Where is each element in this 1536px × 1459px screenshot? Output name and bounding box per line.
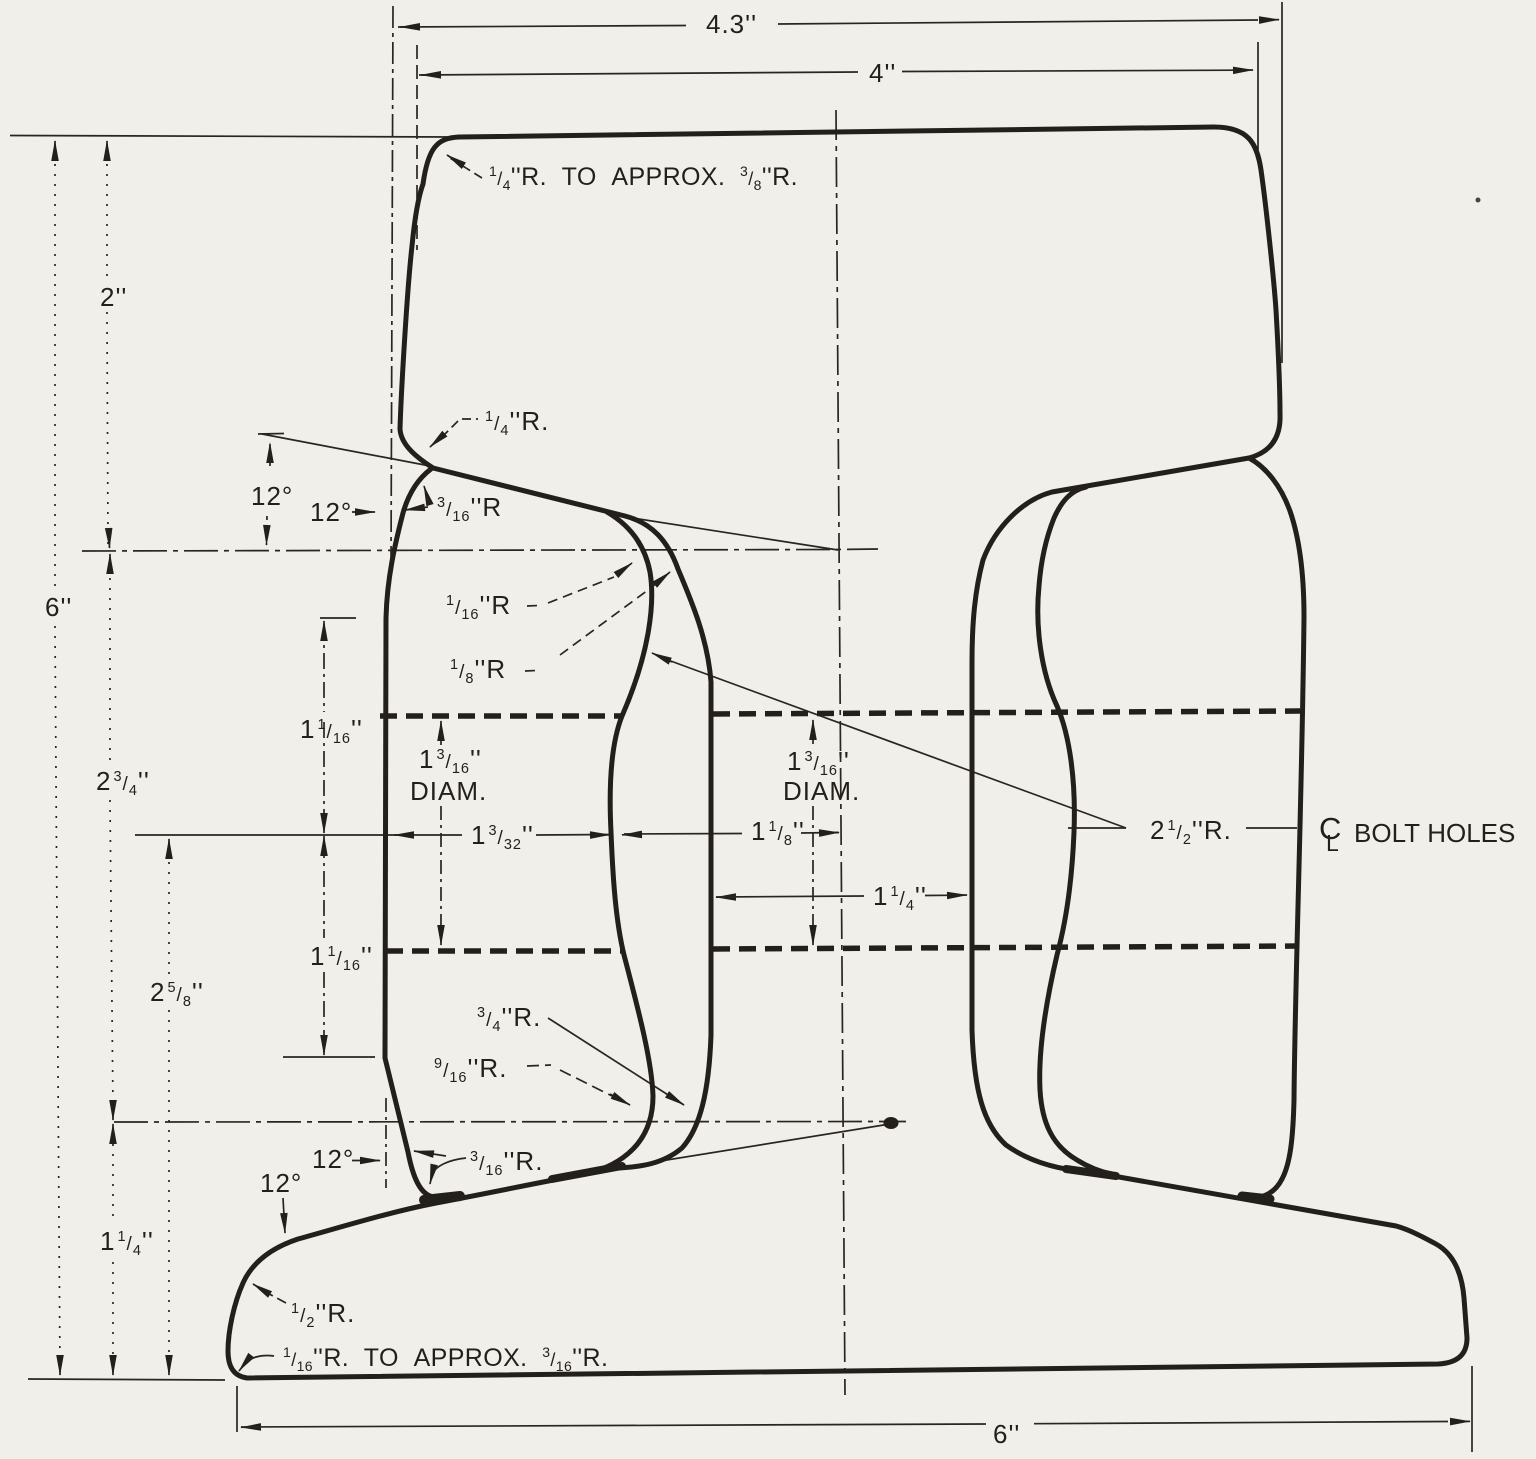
svg-text:L: L [1326,830,1340,856]
svg-text:6'': 6'' [993,1419,1020,1449]
svg-text:12°: 12° [260,1168,302,1198]
svg-text:2'': 2'' [100,282,127,312]
svg-text:21/2''R.: 21/2''R. [1150,815,1232,848]
svg-text:DIAM.: DIAM. [410,776,487,806]
svg-text:DIAM.: DIAM. [783,776,860,806]
svg-text:12°: 12° [310,497,352,527]
svg-text:BOLT HOLES: BOLT HOLES [1354,818,1515,848]
svg-text:1/8''R: 1/8''R [450,654,506,687]
svg-text:4.3'': 4.3'' [706,9,757,39]
svg-text:12°: 12° [251,481,293,511]
svg-text:12°: 12° [312,1144,354,1174]
svg-text:4'': 4'' [869,58,896,88]
svg-text:6'': 6'' [45,592,72,622]
